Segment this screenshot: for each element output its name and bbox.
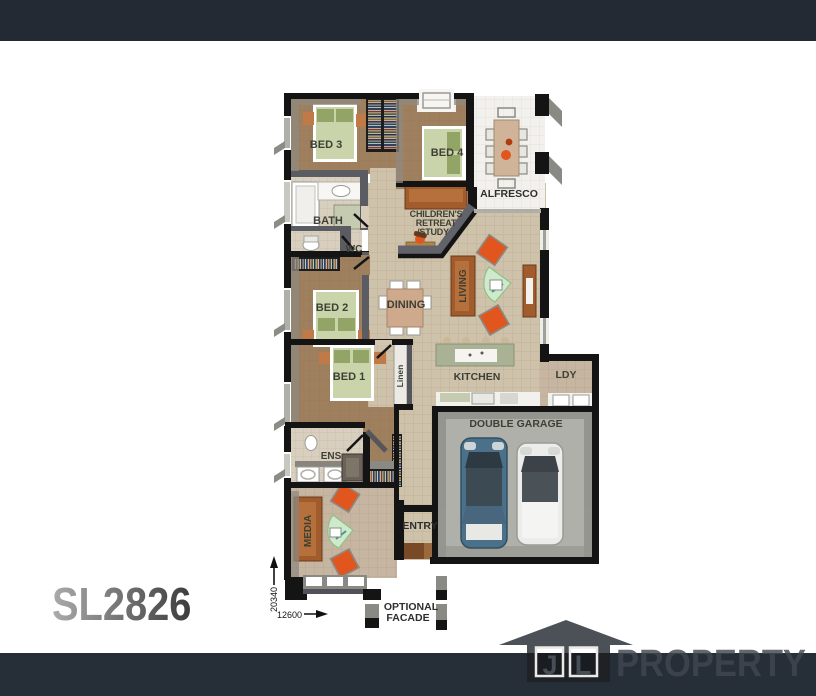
svg-text:DOUBLE GARAGE: DOUBLE GARAGE <box>469 418 562 430</box>
svg-text:Linen: Linen <box>395 365 405 388</box>
svg-text:BED 1: BED 1 <box>333 371 365 383</box>
svg-text:DINING: DINING <box>387 299 426 311</box>
svg-text:BED 3: BED 3 <box>310 139 342 151</box>
svg-text:WC: WC <box>346 244 363 255</box>
svg-text:12600: 12600 <box>277 610 302 620</box>
svg-text:KITCHEN: KITCHEN <box>454 371 501 383</box>
svg-text:/STUDY: /STUDY <box>417 227 449 237</box>
svg-text:ENS: ENS <box>321 451 342 462</box>
svg-text:LDY: LDY <box>556 369 577 381</box>
svg-text:BATH: BATH <box>313 215 343 227</box>
svg-text:SL2826: SL2826 <box>52 579 191 630</box>
svg-text:ALFRESCO: ALFRESCO <box>480 188 538 200</box>
svg-text:ENTRY: ENTRY <box>402 520 437 532</box>
svg-text:MEDIA: MEDIA <box>303 515 314 547</box>
svg-text:LIVING: LIVING <box>458 269 469 303</box>
svg-text:BED 4: BED 4 <box>431 147 464 159</box>
svg-text:20340: 20340 <box>269 587 279 612</box>
svg-text:FACADE: FACADE <box>386 612 429 624</box>
svg-text:BED 2: BED 2 <box>316 302 348 314</box>
